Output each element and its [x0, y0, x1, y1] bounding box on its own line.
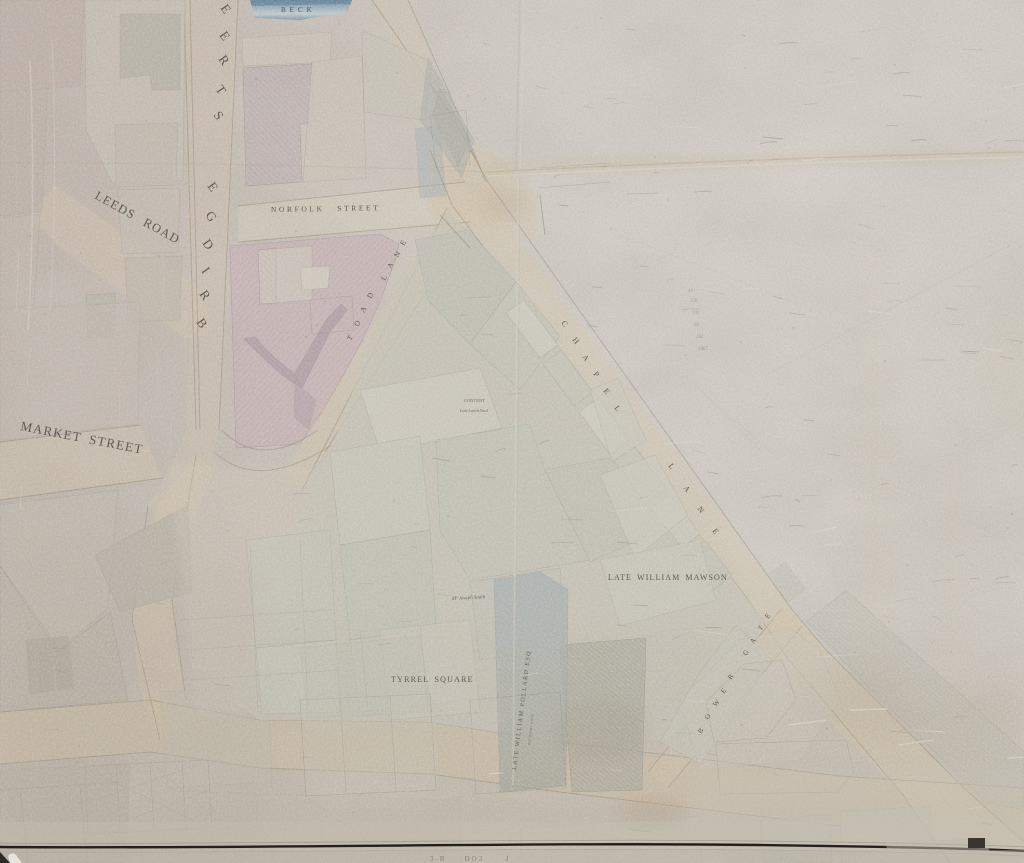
- svg-text:3-R DO3 J: 3-R DO3 J: [430, 855, 510, 863]
